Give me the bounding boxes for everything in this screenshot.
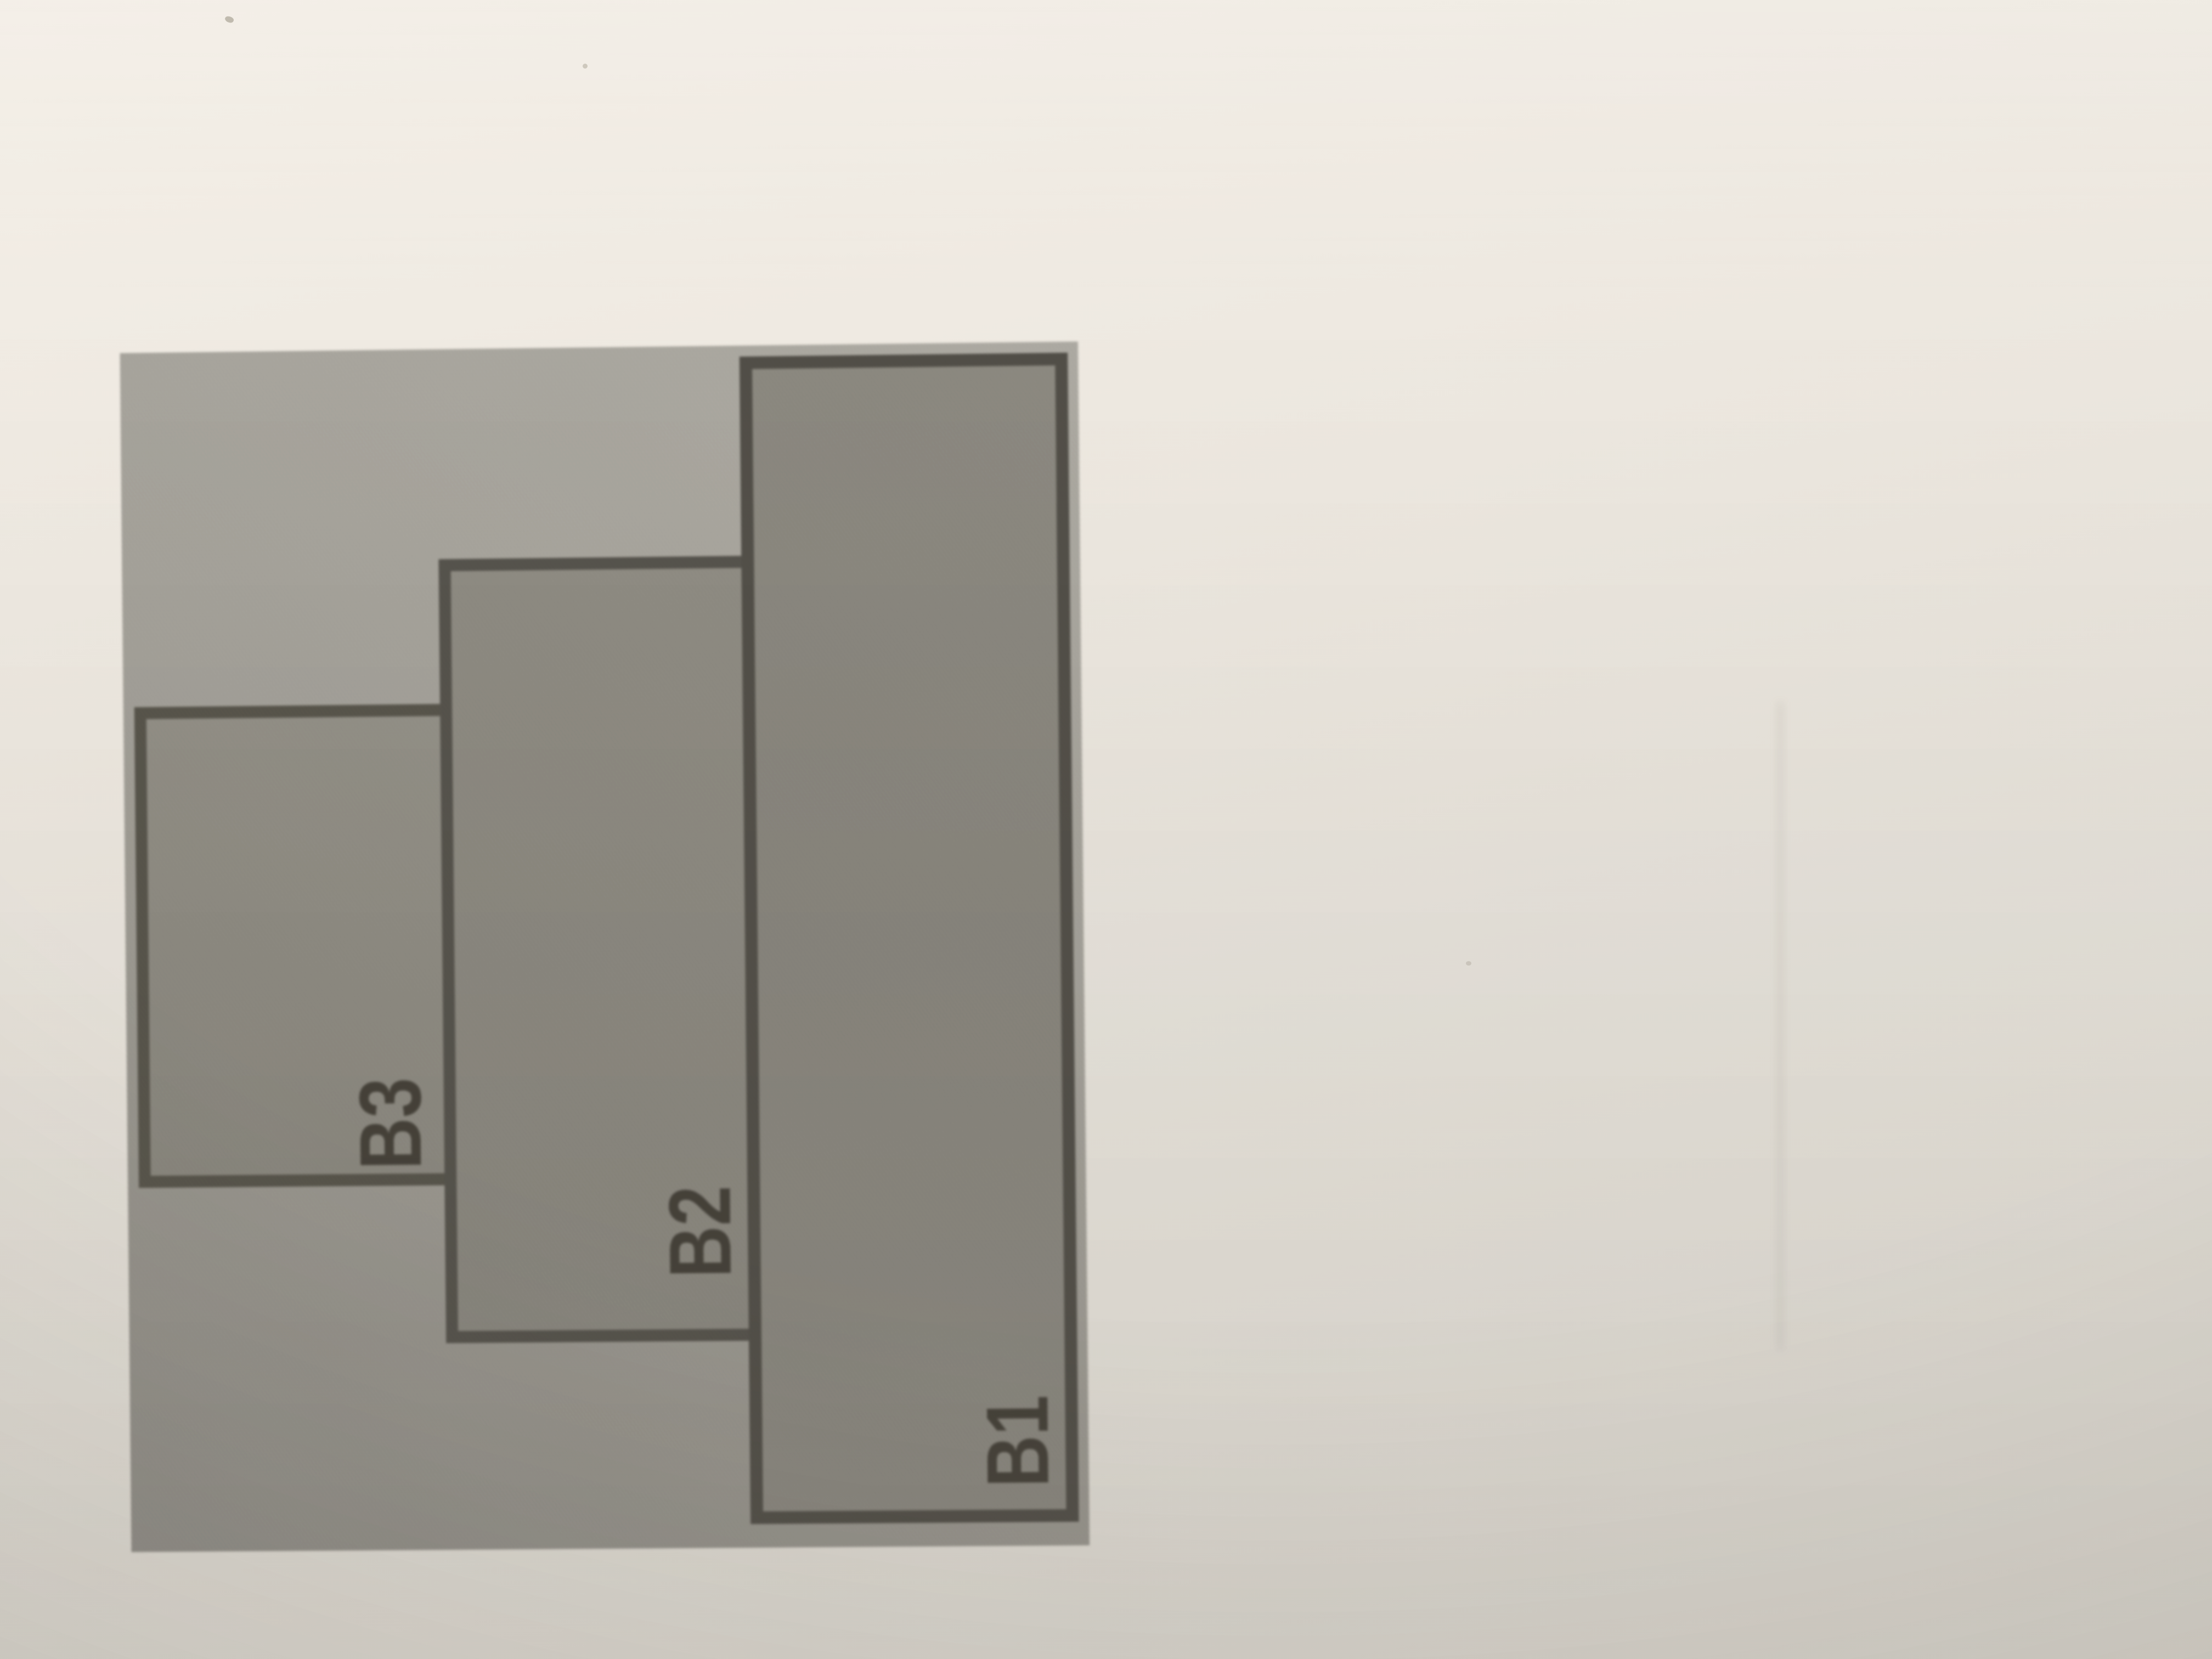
paper-speck <box>1466 961 1471 966</box>
block-b3-label: B3 <box>346 1077 435 1170</box>
photo-background: B3 B2 B1 <box>0 0 2212 1659</box>
paper-speck <box>583 64 588 69</box>
page-crease <box>1776 702 1784 1350</box>
block-b1 <box>740 353 1079 1524</box>
paper-speck <box>224 15 234 24</box>
block-b2-label: B2 <box>656 1186 744 1278</box>
block-b1-label: B1 <box>973 1395 1062 1488</box>
diagram-figure: B3 B2 B1 <box>120 341 1090 1552</box>
